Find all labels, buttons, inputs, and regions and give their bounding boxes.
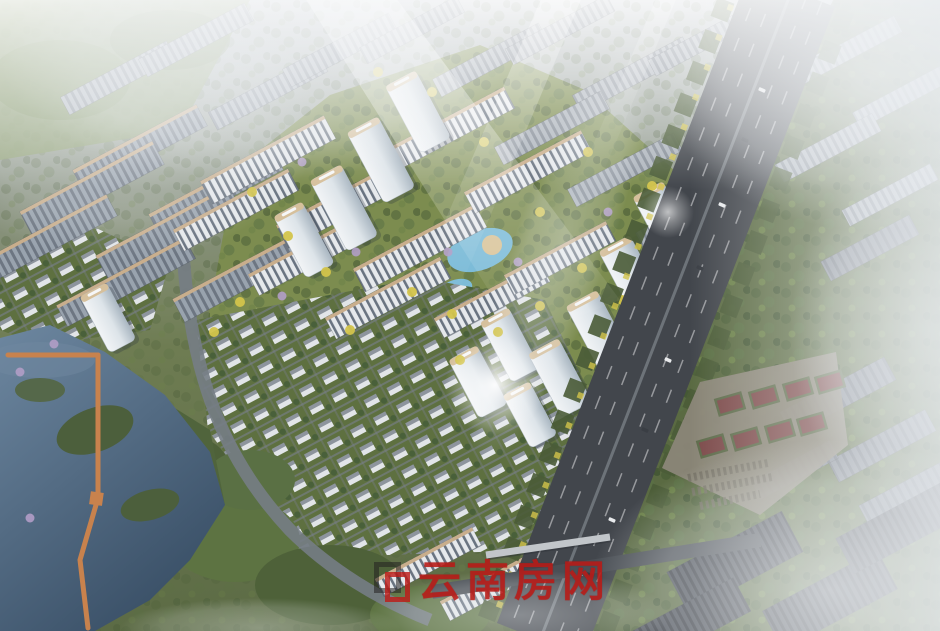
sun-glint (445, 335, 545, 435)
rendering-canvas (0, 0, 940, 631)
aerial-development-rendering: 云南房网 (0, 0, 940, 631)
